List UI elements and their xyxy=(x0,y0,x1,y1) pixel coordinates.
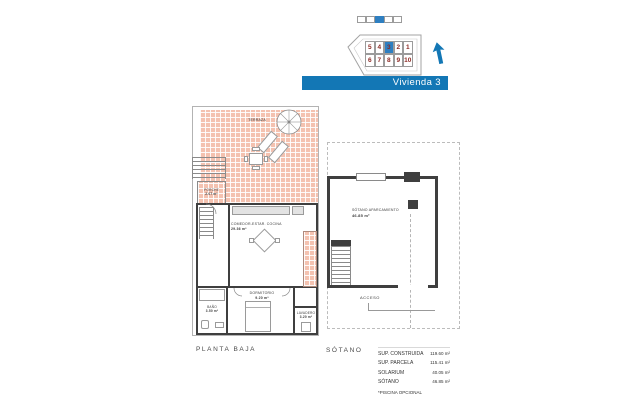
row-value: 46.85 m² xyxy=(432,379,450,385)
sotano-room-label: SÓTANO APARCAMIENTO 46.85 m² xyxy=(352,208,412,218)
unit-number: 9 xyxy=(396,57,400,64)
row-value: 40.05 m² xyxy=(432,370,450,376)
unit-cell-highlighted: 3 xyxy=(384,41,394,54)
unit-cell: 6 xyxy=(365,54,375,67)
basement-stair xyxy=(331,246,351,285)
site-units-top-row: 5 4 3 2 1 xyxy=(365,41,413,54)
unit-number: 8 xyxy=(387,57,391,64)
unit-number: 10 xyxy=(404,57,411,64)
garage-opening xyxy=(398,285,428,290)
door-arcs xyxy=(190,104,320,339)
strip-unit xyxy=(393,16,402,23)
unit-number: 3 xyxy=(387,44,391,51)
sotano-title: SÓTANO xyxy=(326,347,363,354)
table-footnote: *PISCINA OPCIONAL xyxy=(378,390,450,395)
unit-number: 1 xyxy=(406,44,410,51)
row-value: 119.60 m² xyxy=(430,351,450,357)
surface-summary-table: SUP. CONSTRUIDA 119.60 m² SUP. PARCELA 1… xyxy=(378,347,450,395)
row-label: SUP. PARCELA xyxy=(378,360,413,366)
unit-cell: 2 xyxy=(394,41,404,54)
site-row-strip xyxy=(357,16,402,23)
unit-cell: 9 xyxy=(394,54,404,67)
north-arrow-icon xyxy=(430,41,448,65)
unit-cell: 10 xyxy=(403,54,413,67)
table-rule xyxy=(378,347,450,348)
unit-cell: 5 xyxy=(365,41,375,54)
unit-number: 7 xyxy=(377,57,381,64)
unit-title: Vivienda 3 xyxy=(393,77,441,88)
unit-cell: 7 xyxy=(375,54,385,67)
strip-unit-highlighted xyxy=(375,16,384,23)
table-row: SÓTANO 46.85 m² xyxy=(378,379,450,385)
unit-number: 5 xyxy=(368,44,372,51)
site-units-bottom-row: 6 7 8 9 10 xyxy=(365,54,413,67)
planta-baja-title: PLANTA BAJA xyxy=(196,346,256,353)
row-label: SÓTANO xyxy=(378,379,399,385)
acceso-label: ACCESO xyxy=(360,295,380,300)
unit-cell: 8 xyxy=(384,54,394,67)
unit-number: 6 xyxy=(368,57,372,64)
row-label: SUP. CONSTRUIDA xyxy=(378,351,423,357)
unit-cell: 1 xyxy=(403,41,413,54)
strip-unit xyxy=(357,16,366,23)
table-row: SOLARIUM 40.05 m² xyxy=(378,370,450,376)
table-row: SUP. PARCELA 115.41 m² xyxy=(378,360,450,366)
table-row: SUP. CONSTRUIDA 119.60 m² xyxy=(378,351,450,357)
row-label: SOLARIUM xyxy=(378,370,404,376)
unit-cell: 4 xyxy=(375,41,385,54)
sotano-room-area: 46.85 m² xyxy=(352,213,412,218)
wall-block xyxy=(404,172,420,182)
unit-title-banner: Vivienda 3 xyxy=(302,76,448,90)
basement-window xyxy=(356,173,386,181)
access-line-horizontal xyxy=(368,310,435,311)
unit-number: 4 xyxy=(377,44,381,51)
strip-unit xyxy=(366,16,375,23)
unit-number: 2 xyxy=(396,44,400,51)
row-value: 115.41 m² xyxy=(430,360,450,366)
floorplan-sheet: 5 4 3 2 1 6 7 8 9 10 Vivienda 3 TERRAZA xyxy=(0,0,640,412)
strip-unit xyxy=(384,16,393,23)
